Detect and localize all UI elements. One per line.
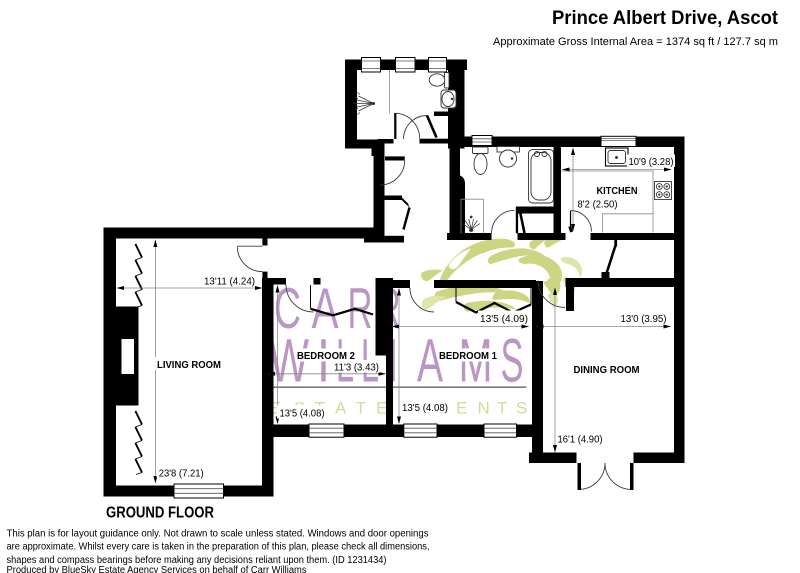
svg-text:11'3 (3.43): 11'3 (3.43) [334,363,379,374]
svg-text:13'5 (4.09): 13'5 (4.09) [480,314,528,325]
svg-text:BEDROOM 1: BEDROOM 1 [439,351,497,362]
svg-text:T: T [497,399,507,418]
svg-text:Prince Albert Drive, Ascot: Prince Albert Drive, Ascot [552,8,779,29]
svg-text:LIVING ROOM: LIVING ROOM [157,360,221,371]
svg-text:This plan is for layout guidan: This plan is for layout guidance only. N… [7,529,429,540]
svg-text:13'0 (3.95): 13'0 (3.95) [621,314,667,325]
svg-text:N: N [478,399,490,418]
svg-text:16'1 (4.90): 16'1 (4.90) [558,435,603,446]
svg-text:13'11 (4.24): 13'11 (4.24) [204,277,255,288]
svg-text:DINING ROOM: DINING ROOM [574,365,640,376]
svg-text:shapes and compass bearings be: shapes and compass bearings before makin… [7,555,387,566]
svg-text:GROUND FLOOR: GROUND FLOOR [106,505,214,522]
svg-text:Approximate Gross Internal Are: Approximate Gross Internal Area = 1374 s… [493,36,778,48]
svg-text:S: S [501,327,524,396]
svg-text:Produced by BlueSky Estate Age: Produced by BlueSky Estate Agency Servic… [7,565,307,573]
svg-text:BEDROOM 2: BEDROOM 2 [297,351,355,362]
svg-text:are approximate. Whilst every: are approximate. Whilst every care is ta… [7,542,430,553]
svg-text:E: E [456,399,467,418]
svg-text:10'9 (3.28): 10'9 (3.28) [629,157,674,168]
svg-text:S: S [516,399,527,418]
svg-text:T: T [356,399,366,418]
svg-text:8'2 (2.50): 8'2 (2.50) [578,200,618,211]
svg-text:13'5 (4.08): 13'5 (4.08) [402,403,448,414]
svg-text:E: E [376,399,387,418]
svg-text:13'5 (4.08): 13'5 (4.08) [280,409,325,420]
svg-text:A: A [335,399,347,418]
svg-text:23'8 (7.21): 23'8 (7.21) [159,469,204,480]
svg-text:KITCHEN: KITCHEN [597,186,638,197]
